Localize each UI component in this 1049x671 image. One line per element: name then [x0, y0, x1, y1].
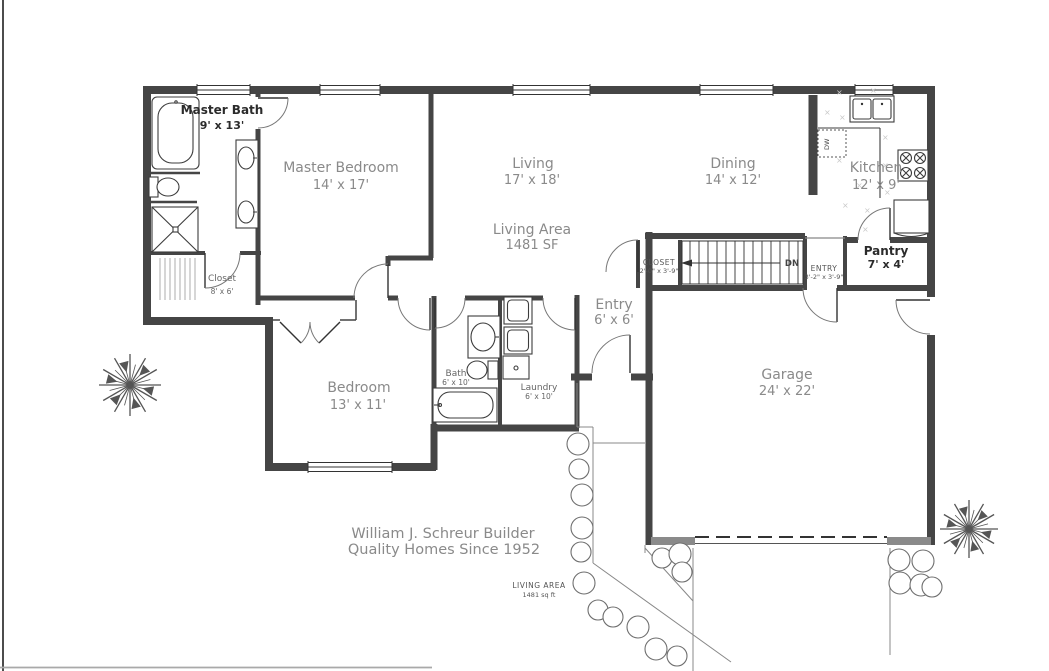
- builder-tagline: Quality Homes Since 1952: [348, 542, 540, 558]
- window-icon: [513, 84, 590, 96]
- dishwasher-icon: DW: [818, 130, 846, 157]
- room-dims-master-bedroom: 14' x 17': [313, 178, 369, 193]
- faucet-icon: [175, 101, 177, 103]
- door-stair-closet: [606, 240, 638, 272]
- sink-icon: [471, 323, 495, 351]
- svg-text:×: ×: [836, 156, 843, 165]
- living-area-label: Living Area: [493, 222, 571, 238]
- room-dims-pantry: 7' x 4': [868, 258, 905, 271]
- room-label-master-bath: Master Bath: [181, 103, 264, 117]
- room-label-bedroom: Bedroom: [327, 380, 390, 396]
- room-dims-living: 17' x 18': [504, 173, 560, 188]
- svg-text:×: ×: [864, 206, 871, 215]
- room-dims-entry: 6' x 6': [594, 313, 634, 328]
- bushes: [567, 433, 942, 666]
- window-icon: [320, 84, 380, 96]
- room-dims-kitchen: 12' x 9': [852, 178, 900, 193]
- room-dims-garage: 24' x 22': [759, 384, 815, 399]
- stove-icon: [898, 150, 928, 181]
- svg-text:×: ×: [839, 113, 846, 122]
- door-front-entry: [592, 335, 630, 373]
- room-label-pantry: Pantry: [864, 244, 909, 258]
- floor-plan-svg: DW ×× ×× ×× ×× ×× ××: [0, 0, 1049, 671]
- hall-bath-fixtures: [433, 316, 500, 422]
- stairs-direction-label: DN: [785, 259, 799, 269]
- room-dims-stair-entry: 3'-2" x 3'-9": [805, 273, 844, 281]
- stair-treads: [690, 241, 798, 284]
- window-icon: [700, 84, 773, 96]
- window-icon: [197, 84, 250, 96]
- room-label-kitchen: Kitchen: [850, 160, 903, 176]
- refrigerator-icon: [894, 200, 929, 237]
- door-garage-service: [896, 300, 930, 334]
- walkway-driveway: [577, 383, 890, 671]
- stair-arrow-icon: [681, 260, 692, 267]
- builder-name: William J. Schreur Builder: [351, 526, 534, 542]
- room-label-closet: Closet: [208, 274, 237, 284]
- window-icon: [308, 461, 392, 473]
- room-label-stair-entry: ENTRY: [811, 264, 838, 273]
- wall-openings: [197, 84, 937, 547]
- kitchen-sink-icon: [850, 96, 894, 122]
- svg-text:×: ×: [836, 88, 843, 97]
- shower-icon: [152, 207, 198, 252]
- door-bath: [435, 298, 465, 328]
- room-dims-dining: 14' x 12': [705, 173, 761, 188]
- room-dims-stair-closet: 2'-0" x 3'-9": [640, 267, 679, 275]
- door-garage-entry: [803, 288, 837, 322]
- svg-text:×: ×: [882, 133, 889, 142]
- room-dims-laundry: 6' x 10': [525, 392, 553, 401]
- room-label-master-bedroom: Master Bedroom: [283, 160, 399, 176]
- door-master-bedroom: [354, 264, 388, 298]
- room-dims-closet: 8' x 6': [211, 287, 234, 296]
- tree-icon: [940, 500, 998, 558]
- floor-plan-page: DW ×× ×× ×× ×× ×× ××: [0, 0, 1049, 671]
- landscaping: [99, 354, 998, 671]
- door-bedroom: [398, 298, 430, 330]
- sink-icon: [238, 201, 254, 223]
- svg-text:×: ×: [842, 201, 849, 210]
- sink-icon: [238, 147, 254, 169]
- room-dims-master-bath: 9' x 13': [200, 119, 244, 132]
- room-label-living: Living: [512, 156, 554, 172]
- room-label-stair-closet: CLOSET: [643, 258, 675, 267]
- room-label-garage: Garage: [761, 367, 812, 383]
- laundry-fixtures: [503, 297, 532, 379]
- door-laundry: [543, 298, 575, 330]
- page-border: [0, 0, 432, 671]
- room-label-entry: Entry: [595, 297, 632, 313]
- svg-text:×: ×: [824, 108, 831, 117]
- room-dims-bath: 6' x 10': [442, 378, 470, 387]
- room-dims-bedroom: 13' x 11': [330, 398, 386, 413]
- closet-rod-icon: [160, 258, 195, 300]
- tree-icon: [99, 354, 161, 416]
- dishwasher-label: DW: [823, 138, 831, 150]
- site-living-area-label: LIVING AREA: [512, 581, 566, 590]
- toilet-icon: [488, 361, 498, 379]
- svg-text:×: ×: [870, 86, 877, 95]
- svg-text:×: ×: [862, 225, 869, 234]
- site-living-area-value: 1481 sq ft: [523, 591, 556, 599]
- living-area-value: 1481 SF: [506, 238, 559, 253]
- room-label-dining: Dining: [710, 156, 755, 172]
- door-bedroom-closet: [280, 322, 340, 343]
- labels: Master Bath 9' x 13' Master Bedroom 14' …: [181, 103, 909, 599]
- door-pantry: [858, 208, 890, 240]
